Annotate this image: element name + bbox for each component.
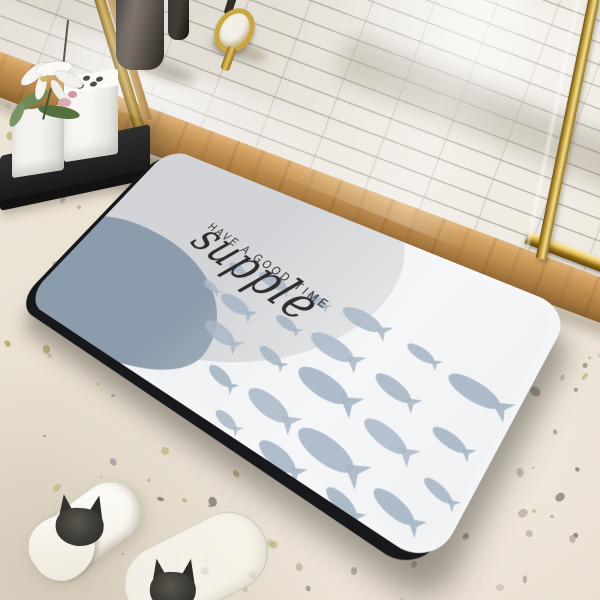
terrazzo-chip — [517, 507, 529, 519]
terrazzo-chip — [574, 466, 581, 473]
terrazzo-chip — [588, 356, 592, 360]
lily-flowers — [0, 36, 115, 151]
terrazzo-chip — [516, 468, 524, 478]
bathroom-scene: supple HAVE A GOOD TIME — [0, 0, 600, 600]
pink-bud — [68, 91, 77, 98]
flower-center — [40, 76, 48, 82]
terrazzo-chip — [582, 363, 588, 369]
terrazzo-chip — [553, 491, 566, 504]
terrazzo-chip — [97, 383, 100, 385]
terrazzo-chip — [207, 504, 211, 507]
terrazzo-chip — [523, 575, 527, 583]
terrazzo-chip — [532, 509, 537, 514]
terrazzo-chip — [496, 583, 505, 592]
terrazzo-chip — [559, 374, 565, 382]
slipper-right — [112, 512, 287, 600]
terrazzo-chip — [181, 497, 187, 502]
leaf — [6, 101, 27, 129]
terrazzo-chip — [161, 446, 170, 455]
terrazzo-chip — [351, 567, 358, 575]
terrazzo-chip — [552, 428, 557, 434]
terrazzo-chip — [110, 394, 114, 398]
terrazzo-chip — [304, 584, 311, 592]
terrazzo-chip — [3, 339, 11, 348]
slipper-strap — [17, 502, 108, 593]
terrazzo-chip — [295, 563, 302, 572]
terrazzo-chip — [47, 353, 52, 357]
terrazzo-chip — [396, 596, 407, 600]
pink-bud — [58, 98, 71, 107]
terrazzo-chip — [574, 388, 578, 392]
slipper-footbed — [110, 498, 282, 600]
terrazzo-chip — [550, 515, 555, 518]
terrazzo-chip — [42, 344, 50, 354]
terrazzo-chip — [568, 535, 576, 544]
terrazzo-chip — [596, 352, 600, 359]
terrazzo-chip — [526, 530, 533, 537]
terrazzo-chip — [532, 467, 535, 470]
terrazzo-chip — [108, 457, 118, 467]
terrazzo-chip — [580, 372, 588, 381]
terrazzo-chip — [43, 435, 46, 437]
